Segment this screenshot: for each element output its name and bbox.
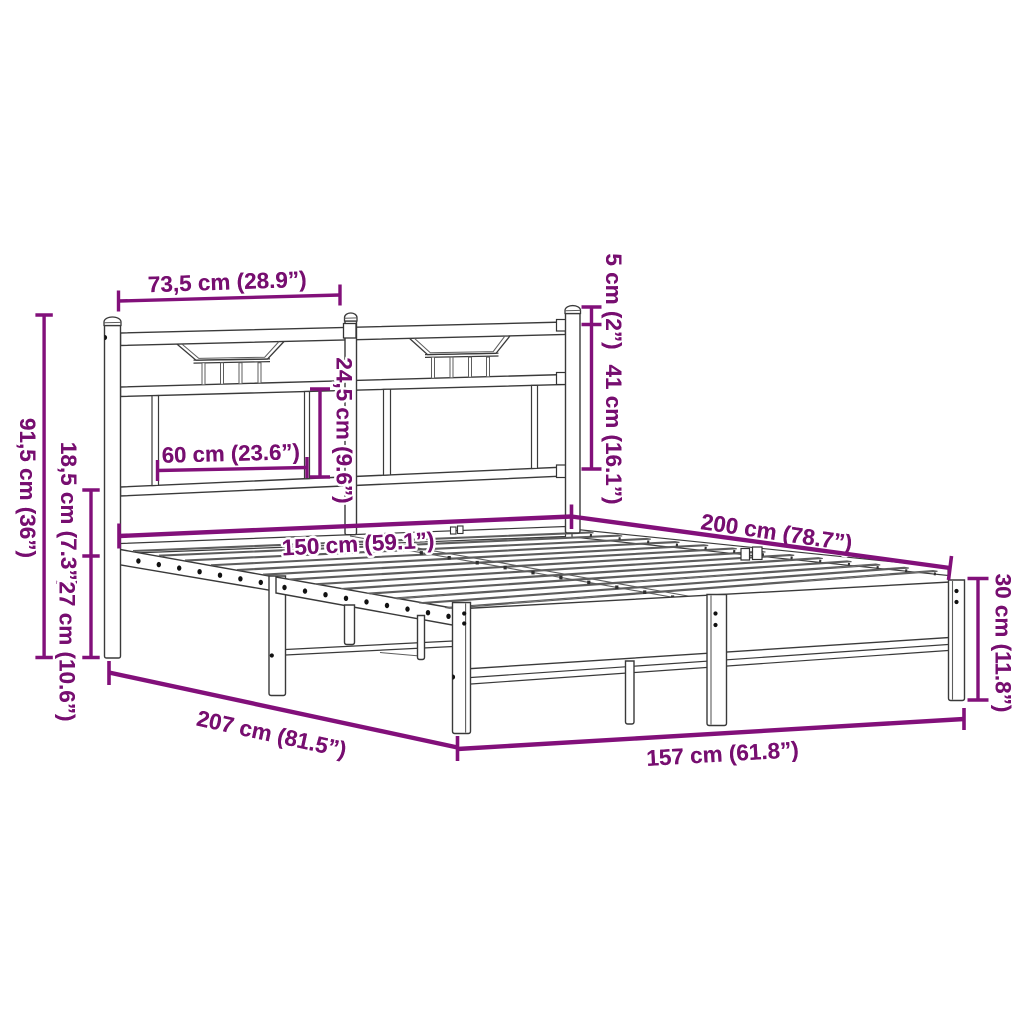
svg-text:60 cm (23.6”): 60 cm (23.6”) — [161, 439, 300, 468]
svg-text:27 cm (10.6”): 27 cm (10.6”) — [55, 581, 80, 721]
svg-text:18,5 cm (7.3”): 18,5 cm (7.3”) — [56, 442, 81, 588]
svg-text:30 cm (11.8”): 30 cm (11.8”) — [991, 574, 1016, 713]
svg-text:91,5 cm (36”): 91,5 cm (36”) — [15, 418, 40, 558]
svg-text:41 cm (16.1”): 41 cm (16.1”) — [601, 364, 626, 504]
svg-text:24,5 cm (9.6”): 24,5 cm (9.6”) — [332, 357, 357, 503]
svg-text:5 cm (2”): 5 cm (2”) — [601, 253, 626, 349]
